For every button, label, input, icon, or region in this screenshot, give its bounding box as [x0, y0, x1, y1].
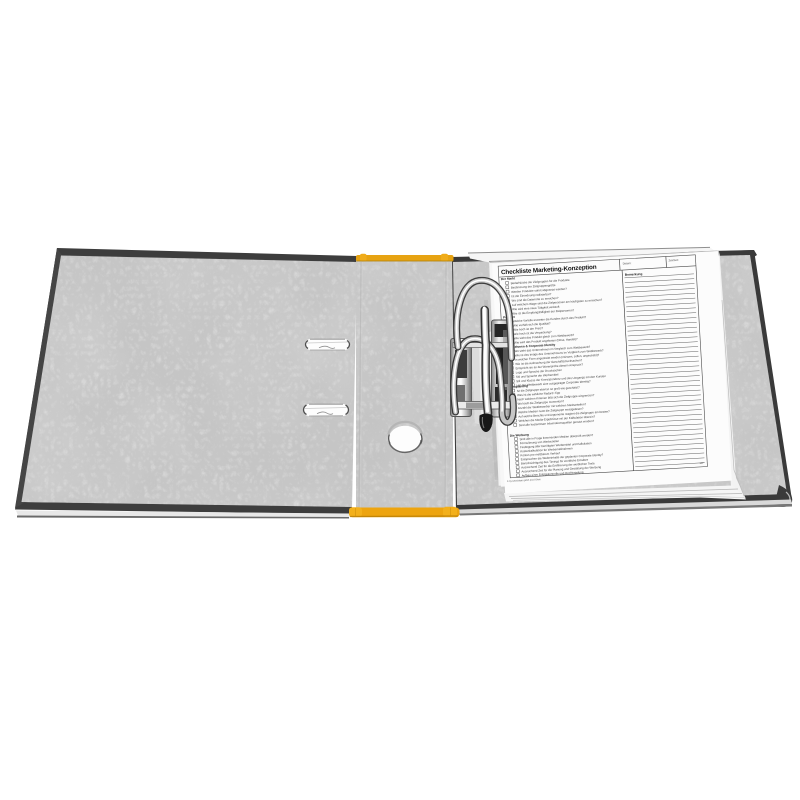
svg-text:Zeichen:: Zeichen:	[668, 258, 679, 263]
svg-text:Datum:: Datum:	[623, 261, 632, 266]
svg-text:66F: 66F	[700, 463, 705, 465]
